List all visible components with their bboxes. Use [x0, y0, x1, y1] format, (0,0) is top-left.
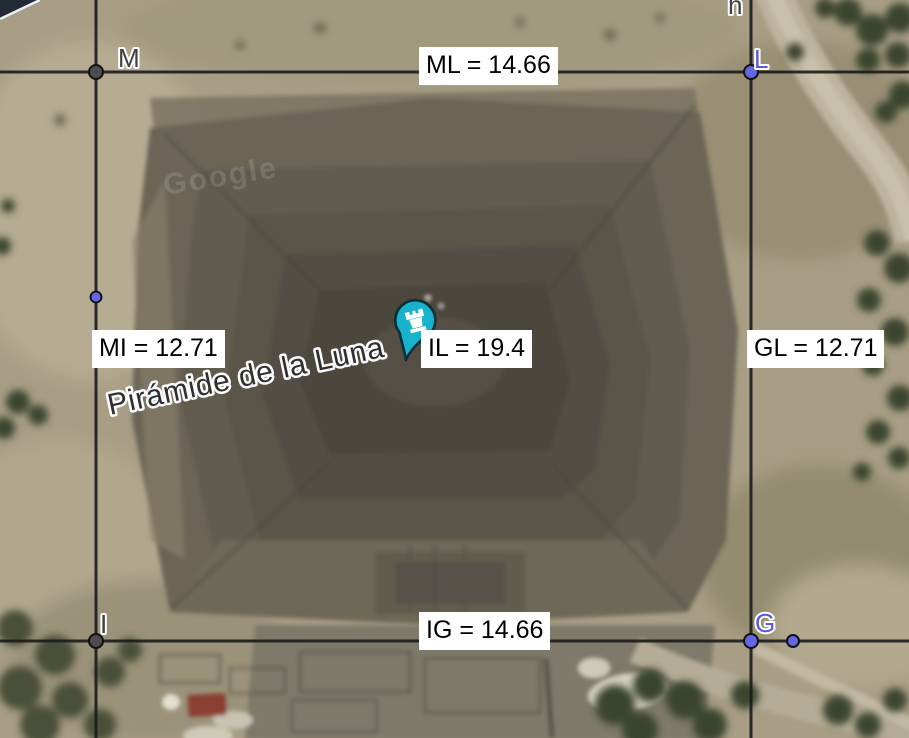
- point-on-line-bottom[interactable]: [787, 635, 799, 647]
- measurement-ml[interactable]: ML = 14.66: [419, 47, 558, 85]
- point-label-i: I: [100, 609, 107, 639]
- point-on-line-left[interactable]: [91, 292, 102, 303]
- point-label-m: M: [118, 43, 140, 73]
- point-label-l: L: [754, 44, 768, 74]
- measurement-il[interactable]: IL = 19.4: [421, 330, 532, 368]
- point-m[interactable]: [89, 65, 103, 79]
- line-label-h: h: [728, 0, 742, 20]
- measurement-mi[interactable]: MI = 12.71: [92, 330, 225, 368]
- map-measurement-screen: Google Pirámide de la Luna: [0, 0, 909, 738]
- measurement-gl[interactable]: GL = 12.71: [747, 330, 884, 368]
- point-label-g: G: [755, 608, 775, 638]
- measurement-ig[interactable]: IG = 14.66: [419, 612, 550, 650]
